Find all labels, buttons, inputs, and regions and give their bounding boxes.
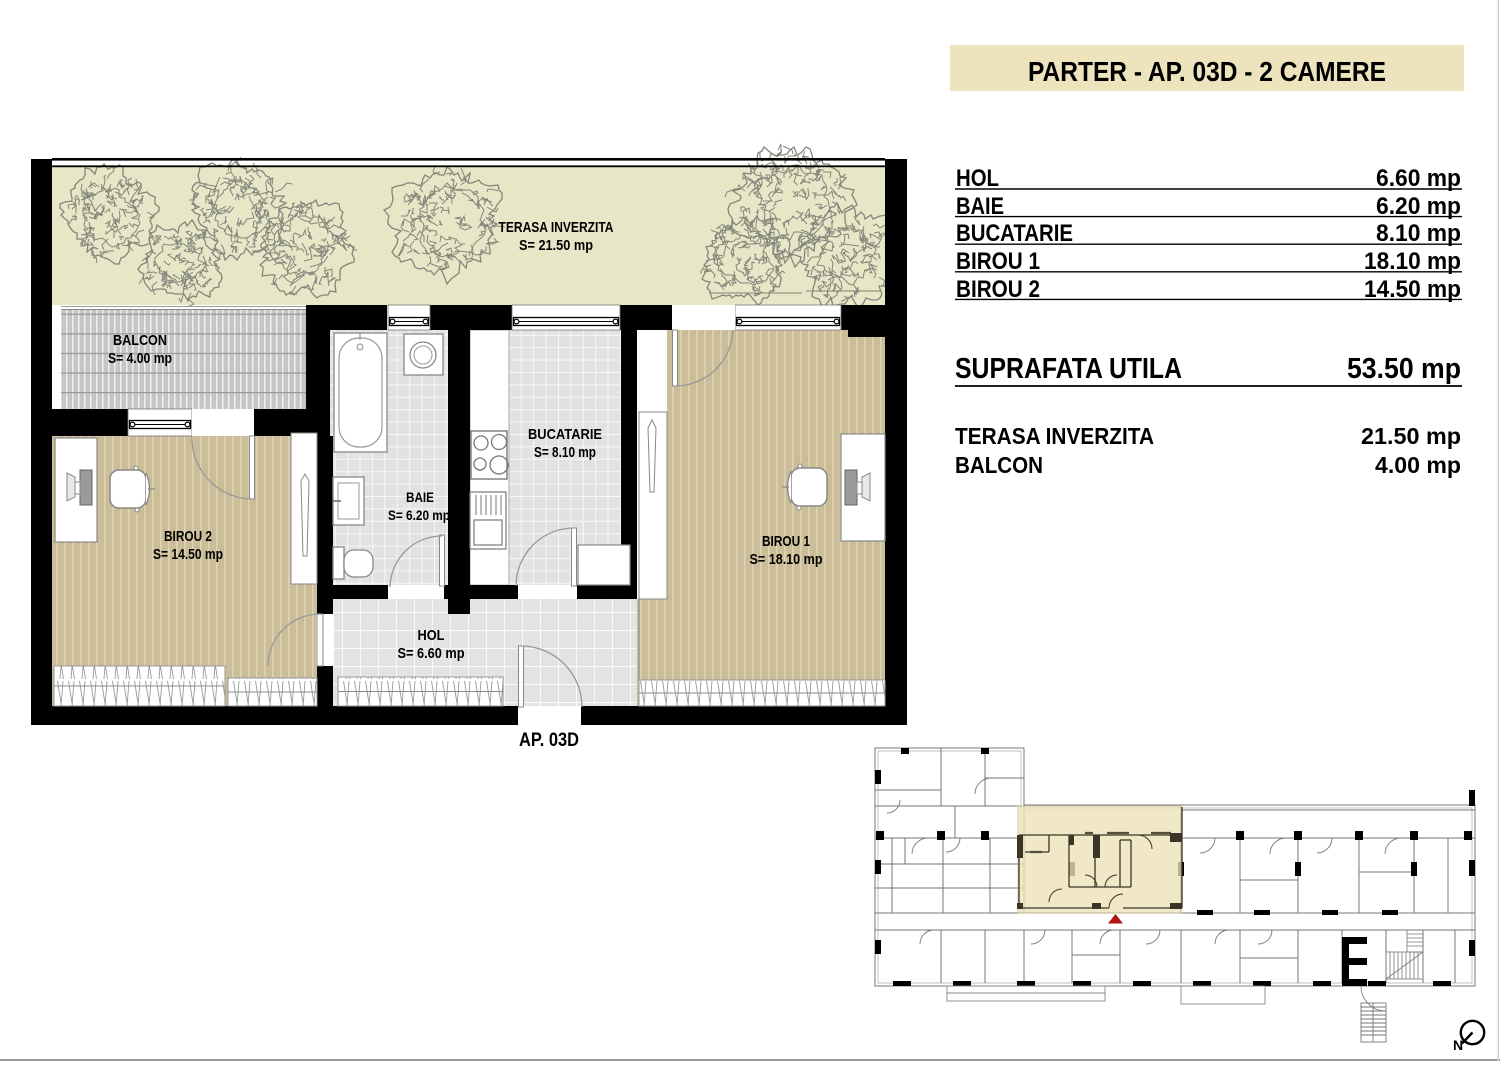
svg-text:S= 8.10 mp: S= 8.10 mp (534, 444, 596, 461)
svg-text:S= 4.00 mp: S= 4.00 mp (108, 350, 172, 367)
svg-text:21.50 mp: 21.50 mp (1361, 423, 1461, 449)
svg-text:BUCATARIE: BUCATARIE (956, 220, 1073, 247)
svg-text:53.50 mp: 53.50 mp (1347, 353, 1461, 385)
svg-text:HOL: HOL (418, 627, 445, 644)
svg-text:SUPRAFATA UTILA: SUPRAFATA UTILA (955, 353, 1182, 385)
svg-text:BALCON: BALCON (113, 332, 167, 349)
svg-text:N: N (1453, 1037, 1463, 1053)
svg-text:6.60 mp: 6.60 mp (1376, 165, 1461, 192)
svg-text:18.10 mp: 18.10 mp (1364, 248, 1461, 275)
svg-text:HOL: HOL (956, 165, 999, 192)
svg-text:BIROU 1: BIROU 1 (762, 533, 810, 550)
svg-text:8.10 mp: 8.10 mp (1376, 220, 1461, 247)
svg-text:BIROU 2: BIROU 2 (164, 528, 212, 545)
svg-text:AP. 03D: AP. 03D (519, 730, 579, 751)
svg-text:BIROU 1: BIROU 1 (956, 248, 1040, 275)
svg-text:S= 18.10 mp: S= 18.10 mp (750, 551, 823, 568)
svg-text:TERASA INVERZITA: TERASA INVERZITA (955, 423, 1154, 449)
svg-text:BALCON: BALCON (955, 452, 1043, 478)
svg-text:BUCATARIE: BUCATARIE (528, 426, 602, 443)
svg-text:4.00 mp: 4.00 mp (1375, 452, 1461, 478)
svg-text:S= 6.60 mp: S= 6.60 mp (398, 645, 465, 662)
svg-text:BAIE: BAIE (406, 490, 434, 505)
svg-text:TERASA INVERZITA: TERASA INVERZITA (499, 219, 614, 236)
svg-text:S= 6.20 mp: S= 6.20 mp (388, 508, 450, 523)
svg-text:S= 21.50 mp: S= 21.50 mp (519, 237, 593, 254)
svg-text:PARTER - AP. 03D - 2 CAMERE: PARTER - AP. 03D - 2 CAMERE (1028, 56, 1386, 87)
svg-text:S= 14.50 mp: S= 14.50 mp (153, 546, 223, 563)
